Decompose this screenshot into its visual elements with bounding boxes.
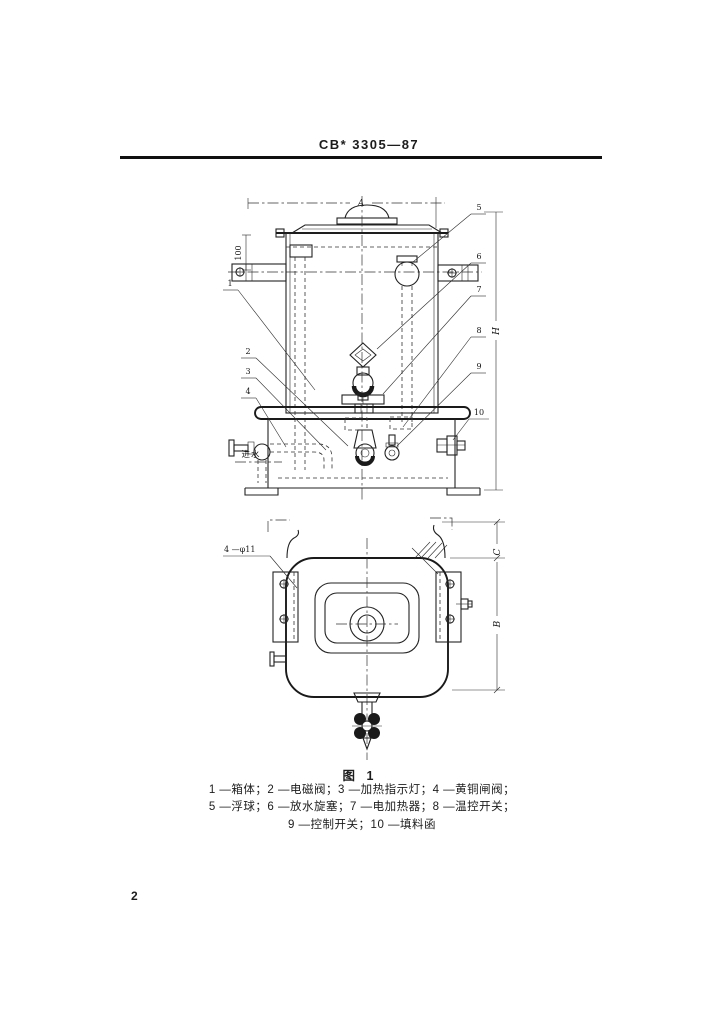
figure-drawing: A — [190, 190, 530, 765]
legend-line: 5 —浮球；6 —放水旋塞；7 —电加热器；8 —温控开关； — [122, 799, 602, 816]
right-bracket — [438, 265, 478, 281]
dim-c-b: C B — [442, 519, 505, 693]
heater-plate — [342, 395, 384, 413]
callout-4: 4 — [245, 387, 250, 396]
legend-line: 9 —控制开关；10 —填料函 — [122, 817, 602, 834]
dim-100: 100 — [234, 235, 251, 270]
standard-number: CB* 3305—87 — [0, 137, 724, 152]
front-view: A — [223, 196, 503, 500]
left-bracket — [232, 264, 286, 281]
dim-b-label: B — [493, 620, 503, 628]
dim-a-label: A — [357, 199, 365, 209]
callout-8: 8 — [476, 326, 481, 335]
dim-100-label: 100 — [234, 245, 243, 260]
inlet-valve: 进水 — [229, 440, 332, 483]
base-fittings — [345, 417, 412, 464]
callout-3: 3 — [245, 367, 250, 376]
dim-h: H — [484, 212, 503, 490]
holes-label: 4 —φ11 — [224, 545, 255, 554]
plan-view: 4 —φ11 C B — [223, 518, 505, 760]
callout-6: 6 — [476, 252, 481, 261]
drain-cock — [350, 343, 376, 400]
callouts-right: 5 6 7 8 9 10 — [377, 203, 489, 446]
float-ball — [395, 256, 419, 286]
plan-right-plate — [436, 572, 472, 642]
callout-7: 7 — [476, 285, 481, 294]
scanned-standard-page: CB* 3305—87 A — [0, 0, 724, 1024]
internal-pipes — [290, 245, 412, 470]
page-number: 2 — [131, 889, 138, 903]
callout-10: 10 — [474, 408, 484, 417]
figure-legend: 1 —箱体；2 —电磁阀；3 —加热指示灯；4 —黄铜闸阀； 5 —浮球；6 —… — [122, 782, 602, 834]
dim-width-a: A — [248, 197, 445, 228]
dim-c-label: C — [493, 548, 503, 555]
stuffing-box — [437, 436, 465, 455]
callout-1: 1 — [227, 279, 232, 288]
callout-2: 2 — [245, 347, 250, 356]
legend-line: 1 —箱体；2 —电磁阀；3 —加热指示灯；4 —黄铜闸阀； — [122, 782, 602, 799]
callout-5: 5 — [476, 203, 481, 212]
inlet-label: 进水 — [241, 449, 260, 459]
header-rule — [120, 156, 602, 159]
lid-knob — [337, 205, 397, 225]
dim-h-label: H — [492, 327, 502, 336]
callout-9: 9 — [476, 362, 481, 371]
plan-side-tap — [270, 652, 286, 666]
